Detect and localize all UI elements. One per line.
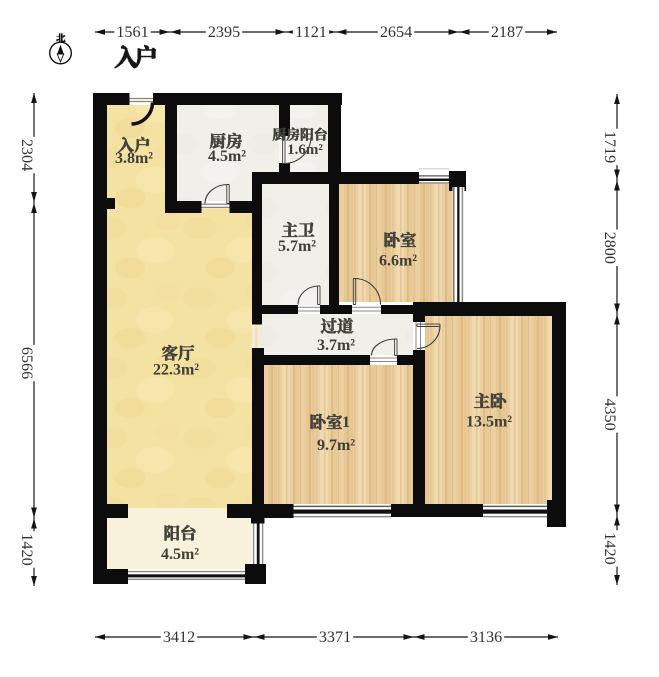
svg-text:5.7m²: 5.7m² <box>278 238 316 255</box>
svg-text:6566: 6566 <box>18 347 36 379</box>
svg-text:2395: 2395 <box>208 23 240 41</box>
svg-text:2800: 2800 <box>601 232 619 264</box>
svg-text:1719: 1719 <box>601 131 619 163</box>
svg-text:1561: 1561 <box>116 23 148 41</box>
svg-text:1121: 1121 <box>295 23 327 41</box>
svg-text:2187: 2187 <box>491 23 523 41</box>
svg-text:3371: 3371 <box>319 628 351 646</box>
svg-text:3136: 3136 <box>470 628 502 646</box>
svg-text:2654: 2654 <box>380 23 412 41</box>
svg-text:2304: 2304 <box>18 139 36 171</box>
svg-text:1.6m²: 1.6m² <box>287 142 323 158</box>
svg-text:22.3m²: 22.3m² <box>153 362 199 379</box>
svg-text:1420: 1420 <box>601 532 619 564</box>
svg-text:6.6m²: 6.6m² <box>379 253 417 270</box>
svg-text:4.5m²: 4.5m² <box>161 546 199 563</box>
svg-text:4.5m²: 4.5m² <box>208 148 246 165</box>
svg-text:13.5m²: 13.5m² <box>466 414 512 431</box>
svg-text:9.7m²: 9.7m² <box>317 437 355 454</box>
svg-text:4350: 4350 <box>601 398 619 430</box>
svg-text:3412: 3412 <box>163 628 195 646</box>
svg-text:3.7m²: 3.7m² <box>317 337 355 354</box>
svg-text:3.8m²: 3.8m² <box>115 150 153 167</box>
svg-text:1420: 1420 <box>18 533 36 565</box>
svg-text:1: 1 <box>342 414 350 431</box>
